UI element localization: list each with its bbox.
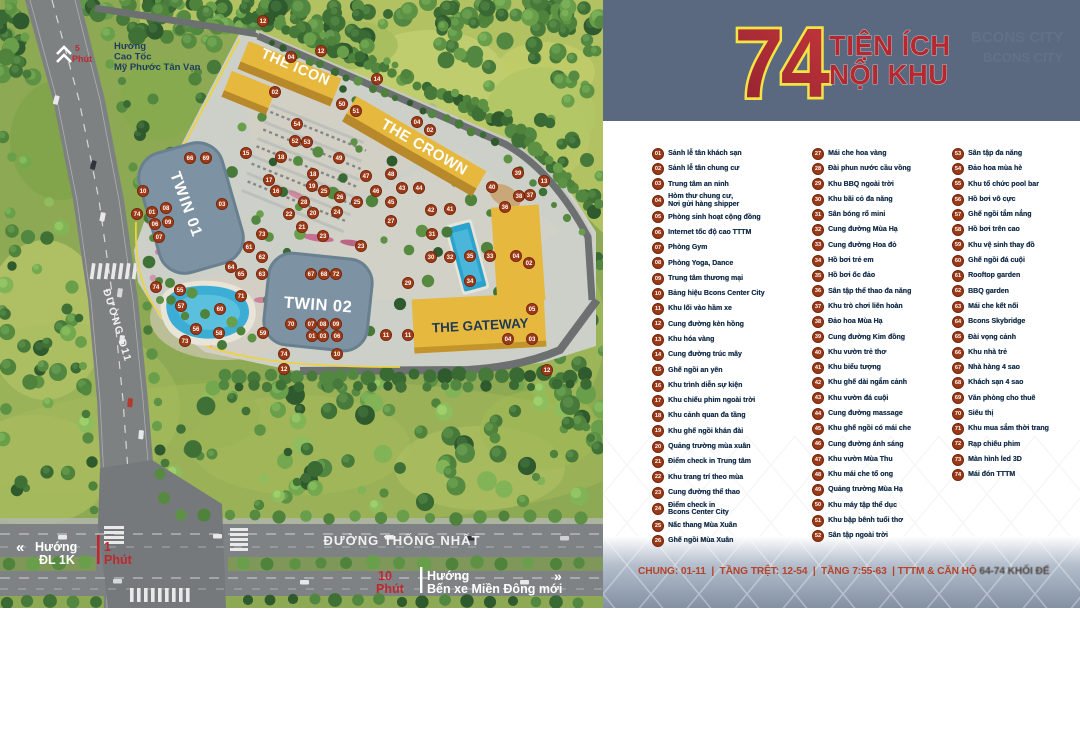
svg-text:25: 25 [354,200,361,206]
svg-text:13: 13 [541,179,548,185]
svg-text:35: 35 [467,254,474,260]
svg-text:74: 74 [134,212,141,218]
svg-text:23: 23 [320,234,327,240]
svg-text:Hướng: Hướng [114,41,146,52]
svg-text:58: 58 [216,331,223,337]
svg-text:09: 09 [333,322,340,328]
svg-text:12: 12 [318,49,325,55]
svg-text:07: 07 [308,322,315,328]
svg-text:67: 67 [308,272,315,278]
svg-text:31: 31 [429,232,436,238]
svg-text:19: 19 [309,184,316,190]
svg-text:48: 48 [388,172,395,178]
svg-text:49: 49 [336,156,343,162]
svg-text:04: 04 [505,337,512,343]
svg-text:69: 69 [203,156,210,162]
svg-text:74: 74 [734,9,830,118]
svg-text:09: 09 [165,220,172,226]
svg-text:10: 10 [140,189,147,195]
svg-text:01: 01 [149,210,156,216]
svg-text:08: 08 [320,322,327,328]
svg-text:03: 03 [320,334,327,340]
svg-text:18: 18 [310,172,317,178]
svg-text:TIỆN ÍCH: TIỆN ÍCH [829,30,951,61]
svg-text:55: 55 [177,288,184,294]
svg-text:44: 44 [416,186,423,192]
svg-text:Mỹ Phước Tân Vạn: Mỹ Phước Tân Vạn [114,62,201,73]
svg-text:60: 60 [217,307,224,313]
svg-text:12: 12 [281,367,288,373]
svg-text:27: 27 [388,219,395,225]
svg-text:01: 01 [309,334,316,340]
svg-text:42: 42 [428,208,435,214]
svg-text:07: 07 [156,235,163,241]
svg-text:74: 74 [153,285,160,291]
svg-text:71: 71 [238,294,245,300]
svg-text:05: 05 [529,307,536,313]
svg-text:»: » [554,568,562,584]
svg-text:03: 03 [219,202,226,208]
svg-text:12: 12 [260,19,267,25]
svg-text:10: 10 [334,352,341,358]
svg-text:62: 62 [259,255,266,261]
svg-text:11: 11 [383,333,390,339]
svg-text:45: 45 [388,200,395,206]
svg-text:18: 18 [278,155,285,161]
svg-text:02: 02 [272,90,279,96]
svg-text:20: 20 [310,211,317,217]
svg-text:37: 37 [527,193,534,199]
svg-text:04: 04 [288,55,295,61]
svg-text:NỘI KHU: NỘI KHU [829,58,949,90]
svg-text:63: 63 [259,272,266,278]
svg-text:03: 03 [529,337,536,343]
svg-text:70: 70 [288,322,295,328]
svg-text:39: 39 [515,171,522,177]
svg-text:29: 29 [405,281,412,287]
svg-text:61: 61 [246,245,253,251]
svg-text:40: 40 [489,185,496,191]
svg-text:04: 04 [414,120,421,126]
svg-text:06: 06 [152,222,159,228]
svg-text:ĐƯỜNG THỐNG NHẤT: ĐƯỜNG THỐNG NHẤT [323,533,480,548]
svg-text:«: « [16,539,24,556]
svg-text:16: 16 [273,189,280,195]
svg-text:33: 33 [487,254,494,260]
svg-text:Hướng: Hướng [35,540,77,554]
svg-text:65: 65 [238,272,245,278]
svg-text:46: 46 [373,189,380,195]
svg-text:BCONS CITY: BCONS CITY [983,50,1064,65]
svg-text:5: 5 [75,43,80,53]
svg-text:47: 47 [363,174,370,180]
svg-text:17: 17 [266,178,273,184]
svg-text:04: 04 [513,254,520,260]
svg-text:Cao Tốc: Cao Tốc [114,52,151,63]
svg-text:54: 54 [294,122,301,128]
svg-text:66: 66 [187,156,194,162]
svg-text:34: 34 [467,279,474,285]
svg-text:Phút: Phút [72,54,92,64]
svg-text:Hướng: Hướng [427,569,469,583]
svg-text:08: 08 [163,206,170,212]
svg-text:Bến xe Miền Đông mới: Bến xe Miền Đông mới [427,582,562,596]
svg-text:28: 28 [301,200,308,206]
svg-text:52: 52 [292,139,299,145]
svg-text:36: 36 [502,205,509,211]
svg-text:73: 73 [182,339,189,345]
svg-text:12: 12 [544,368,551,374]
svg-text:23: 23 [358,244,365,250]
svg-text:74: 74 [281,352,288,358]
svg-text:22: 22 [286,212,293,218]
svg-text:Phút: Phút [376,582,405,596]
svg-text:1: 1 [104,540,111,554]
svg-text:53: 53 [304,140,311,146]
svg-text:BCONS CITY: BCONS CITY [971,29,1064,46]
svg-text:02: 02 [427,128,434,134]
svg-text:41: 41 [447,207,454,213]
svg-text:ĐL 1K: ĐL 1K [39,553,75,567]
svg-text:32: 32 [447,255,454,261]
svg-text:11: 11 [405,333,412,339]
svg-text:06: 06 [334,334,341,340]
svg-text:51: 51 [353,109,360,115]
svg-text:68: 68 [321,272,328,278]
svg-text:Phút: Phút [104,553,133,567]
svg-text:50: 50 [339,102,346,108]
svg-text:15: 15 [243,151,250,157]
svg-text:72: 72 [333,272,340,278]
svg-text:02: 02 [526,261,533,267]
svg-text:38: 38 [516,194,523,200]
svg-text:21: 21 [299,225,306,231]
svg-text:10: 10 [378,569,392,583]
svg-text:57: 57 [178,304,185,310]
svg-text:24: 24 [334,210,341,216]
svg-text:25: 25 [321,189,328,195]
svg-text:26: 26 [337,195,344,201]
svg-text:64: 64 [228,265,235,271]
svg-text:56: 56 [193,327,200,333]
svg-text:73: 73 [259,232,266,238]
svg-text:43: 43 [399,186,406,192]
svg-text:14: 14 [374,77,381,83]
svg-text:59: 59 [260,331,267,337]
svg-text:30: 30 [428,255,435,261]
